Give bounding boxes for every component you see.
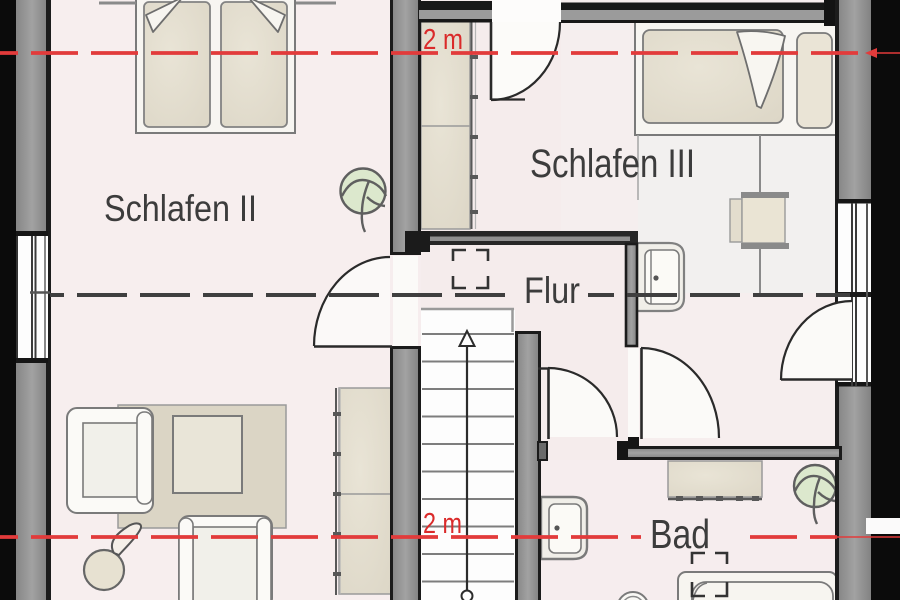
svg-text:Flur: Flur <box>524 270 580 311</box>
svg-text:Schlafen II: Schlafen II <box>104 188 257 229</box>
svg-text:Bad: Bad <box>650 511 710 557</box>
svg-text:2 m: 2 m <box>423 508 462 540</box>
svg-text:2 m: 2 m <box>423 24 463 56</box>
svg-text:Schlafen III: Schlafen III <box>530 142 695 186</box>
